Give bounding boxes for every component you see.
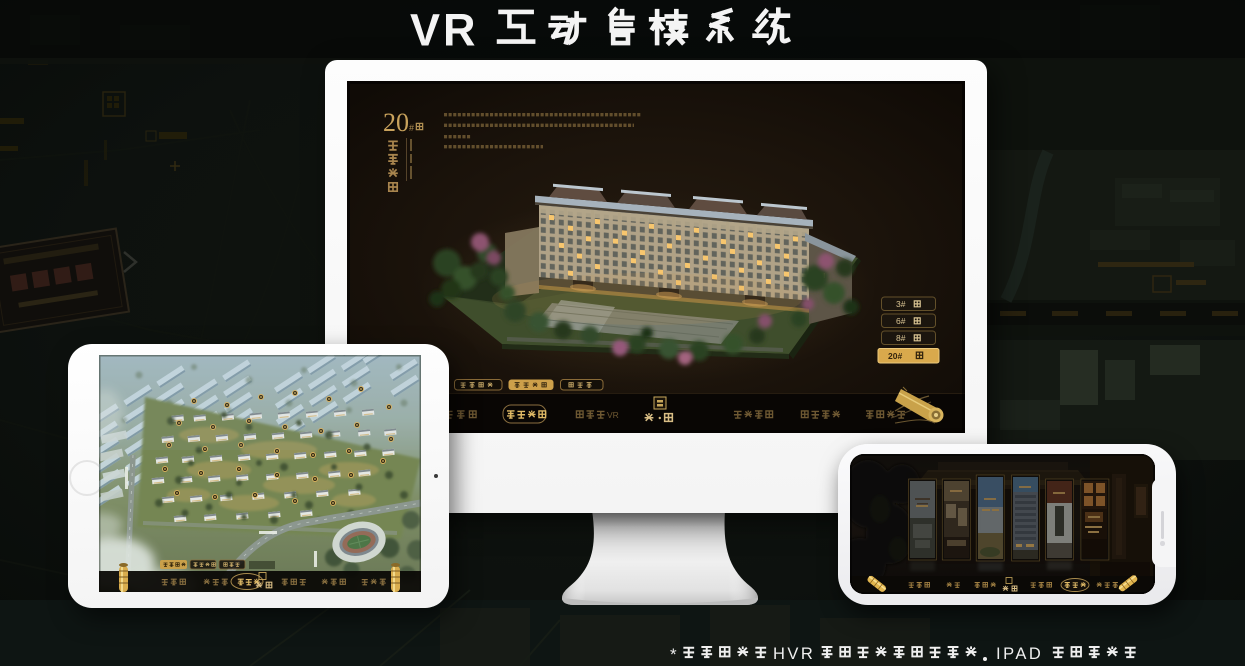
svg-text:3#: 3# [896,299,906,309]
svg-text:VR: VR [607,410,619,420]
svg-text:*: * [670,645,677,664]
svg-text:#: # [409,123,414,133]
svg-text:8#: 8# [896,333,906,343]
svg-text:HVR: HVR [773,645,815,663]
svg-text:6#: 6# [896,316,906,326]
svg-text:VR: VR [410,5,479,56]
svg-text:IPAD: IPAD [996,645,1043,663]
svg-text:20#: 20# [888,351,902,361]
svg-text:20: 20 [383,108,409,137]
